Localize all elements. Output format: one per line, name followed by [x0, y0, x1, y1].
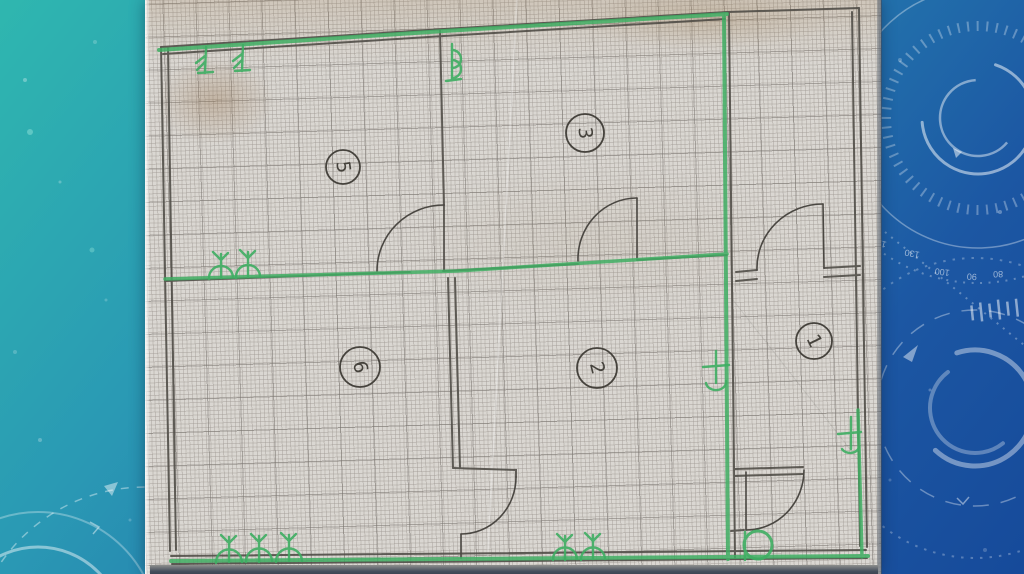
dial-number: 80 — [993, 269, 1003, 279]
paper-edge-highlight — [145, 0, 149, 574]
arrow-icon — [903, 345, 918, 362]
dial-number: 100 — [934, 266, 950, 278]
graph-paper-photo — [145, 0, 881, 574]
tick-bars — [971, 298, 1018, 323]
dial-numbers: 120 130 100 90 80 — [870, 236, 1003, 282]
paper-edge-shadow — [877, 0, 882, 574]
presentation-slide: { "slide": { "description": "Presentatio… — [0, 0, 1024, 574]
dial-number: 130 — [904, 247, 921, 259]
dial-number: 90 — [967, 271, 978, 282]
paper-bottom-shadow — [150, 565, 878, 574]
arrow-icon — [104, 482, 118, 496]
